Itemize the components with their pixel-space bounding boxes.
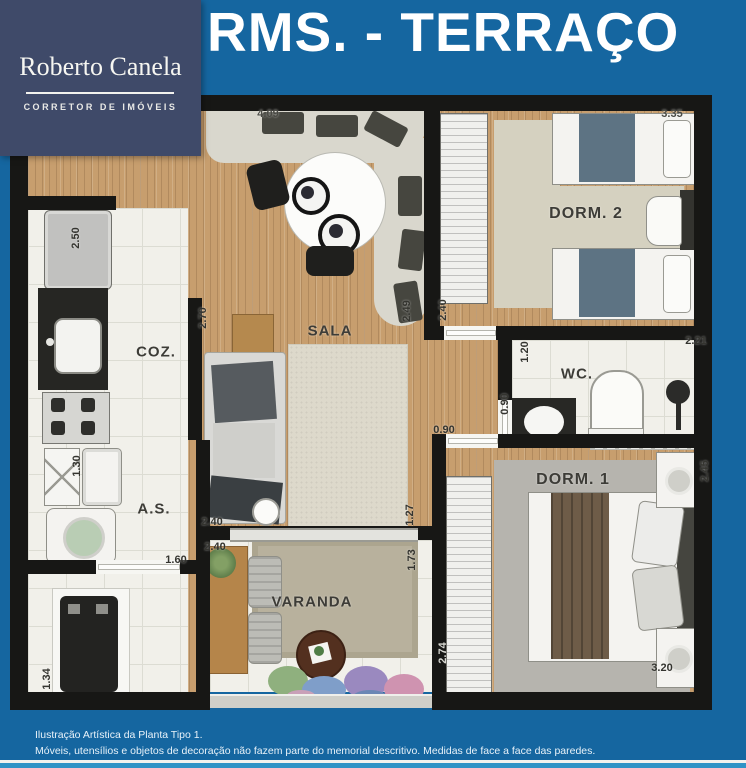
- wall-varanda-dorm1: [432, 434, 446, 710]
- measure-dorm1-door: 0.90: [433, 424, 454, 436]
- measure-varanda-right: 1.73: [406, 549, 418, 570]
- bed-pillow: [631, 500, 685, 568]
- room-label-as: A.S.: [137, 501, 170, 518]
- measure-kitchen-wall: 2.70: [197, 307, 209, 328]
- measure-terrace-width: 4.09: [257, 108, 278, 120]
- nightstand-lamp: [665, 467, 693, 495]
- dorm1-nightstand: [656, 452, 696, 508]
- room-label-dorm1: DORM. 1: [536, 471, 610, 489]
- logo-divider: [26, 92, 174, 94]
- room-label-coz: COZ.: [136, 344, 176, 361]
- wall-as-varanda: [196, 440, 210, 710]
- flyer-root: DORM. 2 SALA COZ. WC. A.S. DORM. 1 VARAN…: [0, 0, 746, 768]
- dorm2-wardrobe: [440, 113, 488, 304]
- dorm1-wardrobe: [446, 476, 492, 694]
- plate: [292, 177, 330, 215]
- kitchen-faucet: [46, 338, 54, 346]
- wall-terrace-dorm2: [424, 101, 440, 333]
- terrace-chair: [316, 115, 358, 137]
- kitchen-sink: [54, 318, 102, 374]
- bed-blanket: [551, 493, 609, 659]
- fire-pit-leaf: [314, 646, 324, 656]
- measure-storage-depth: 1.34: [41, 668, 53, 689]
- burner: [81, 398, 95, 412]
- sofa: [204, 352, 286, 524]
- burner: [51, 421, 65, 435]
- varanda-railing: [206, 694, 436, 708]
- grill: [60, 596, 118, 692]
- measure-as-depth: 1.30: [71, 455, 83, 476]
- broker-logo: Roberto Canela CORRETOR DE IMÓVEIS: [0, 0, 201, 156]
- room-label-sala: SALA: [308, 323, 353, 340]
- grill-knob: [68, 604, 80, 614]
- sala-side-table: [232, 314, 274, 354]
- measure-wc-depth: 1.20: [519, 341, 531, 362]
- measure-dorm2-width: 3.35: [661, 108, 682, 120]
- bed-blanket: [579, 114, 635, 182]
- washer-drum: [63, 517, 105, 559]
- measure-as-door: 1.60: [165, 554, 186, 566]
- burner: [81, 421, 95, 435]
- wall-bottom-right: [436, 692, 712, 710]
- wall-right: [694, 95, 712, 710]
- plate-food: [329, 224, 343, 238]
- measure-kitchen-depth: 2.50: [70, 227, 82, 248]
- measure-varanda-top: 2.40: [204, 541, 225, 553]
- dorm2-desk: [680, 190, 694, 250]
- washing-machine-top: [46, 508, 116, 564]
- grill-knob: [96, 604, 108, 614]
- wall-kitchen-top: [28, 196, 116, 210]
- footer-line1: Ilustração Artística da Planta Tipo 1.: [35, 729, 203, 741]
- broker-tagline: CORRETOR DE IMÓVEIS: [0, 102, 201, 112]
- page-title: RMS. - TERRAÇO: [207, 0, 746, 64]
- measure-wc-door: 0.90: [499, 393, 511, 414]
- bed-pillow: [663, 255, 691, 313]
- measure-dorm1-width: 3.20: [651, 662, 672, 674]
- dorm1-nightstand: [656, 628, 696, 688]
- sala-rug: [288, 344, 408, 532]
- fridge: [44, 210, 112, 290]
- measure-dorm1-depth: 2.45: [699, 460, 711, 481]
- toilet-bowl: [590, 370, 644, 436]
- dorm2-door-leaf: [446, 330, 496, 336]
- footer-strip: [0, 763, 746, 768]
- shower-stem: [676, 402, 681, 430]
- shower-head: [666, 380, 690, 404]
- sala-round-table: [252, 498, 280, 526]
- measure-sala-width: 2.49: [401, 300, 413, 321]
- dorm2-bed: [552, 248, 696, 320]
- wall-left: [10, 95, 28, 710]
- sofa-cushion: [211, 361, 277, 423]
- bed-pillow: [631, 564, 684, 631]
- bed-pillow: [663, 120, 691, 178]
- table-chair: [306, 246, 354, 276]
- measure-varanda-side: 2.74: [437, 642, 449, 663]
- dorm2-chair: [646, 196, 682, 246]
- bed-blanket: [579, 249, 635, 317]
- terrace-chair: [398, 176, 422, 216]
- measure-hall-depth: 1.27: [404, 504, 416, 525]
- dorm1-door-leaf: [448, 438, 498, 444]
- wall-bottom-left: [10, 692, 206, 710]
- dorm2-bed: [552, 113, 696, 185]
- room-label-wc: WC.: [561, 366, 593, 383]
- sofa-cushion: [213, 423, 275, 478]
- room-label-dorm2: DORM. 2: [549, 205, 623, 223]
- burner: [51, 398, 65, 412]
- measure-sala-length: 2.40: [201, 516, 222, 528]
- measure-wc-width: 2.21: [685, 335, 706, 347]
- room-label-varanda: VARANDA: [272, 594, 353, 611]
- broker-name: Roberto Canela: [0, 52, 201, 82]
- footer-line2: Móveis, utensílios e objetos de decoraçã…: [35, 745, 595, 757]
- terrace-chair: [398, 229, 427, 272]
- stove: [42, 392, 110, 444]
- plate-food: [301, 186, 314, 199]
- washing-machine: [82, 448, 122, 506]
- measure-dorm2-depth: 2.40: [437, 299, 449, 320]
- varanda-chair: [248, 612, 282, 664]
- varanda-sliding-door: [230, 528, 418, 542]
